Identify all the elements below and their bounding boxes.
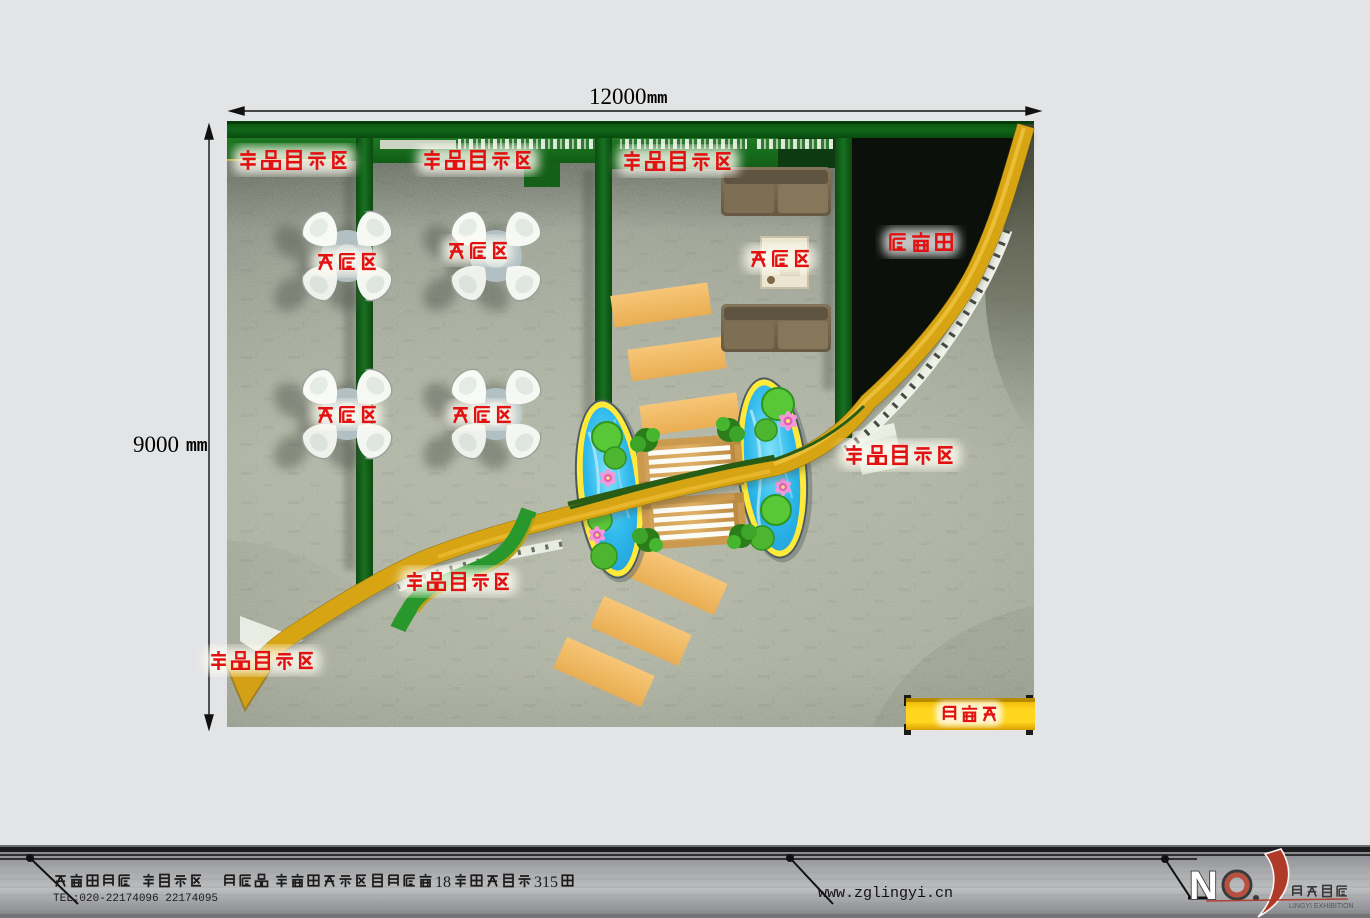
svg-text:18: 18 (435, 874, 451, 891)
svg-text:12000: 12000 (589, 84, 647, 109)
svg-text:9000: 9000 (133, 432, 179, 457)
svg-text:315: 315 (534, 874, 558, 891)
svg-text:www.zglingyi.cn: www.zglingyi.cn (818, 885, 953, 902)
svg-text:mm: mm (186, 437, 208, 457)
svg-text:LINGYI EXHIBITION: LINGYI EXHIBITION (1289, 903, 1354, 910)
svg-text:TEL:020-22174096 22174095: TEL:020-22174096 22174095 (53, 893, 218, 905)
svg-text:mm: mm (647, 90, 667, 109)
